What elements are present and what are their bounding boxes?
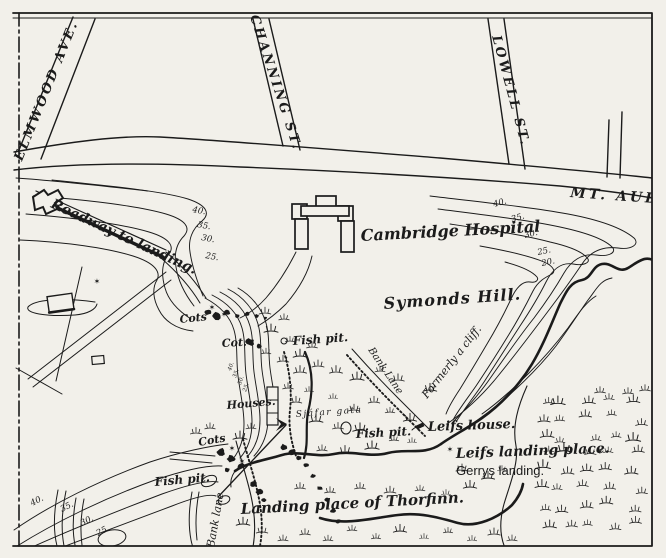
tree-blob xyxy=(225,468,230,473)
star-icon: ✶ xyxy=(239,457,246,466)
label-bank-lane-upper: Bank Lane xyxy=(365,345,405,397)
tree-blob xyxy=(212,312,221,320)
contour-value: 40. xyxy=(28,494,45,510)
marsh-tuft-icon xyxy=(626,433,641,442)
tree-blob xyxy=(296,456,301,461)
mt-auburn-street xyxy=(14,137,652,198)
marsh-tuft-icon xyxy=(561,467,574,474)
tree-blob xyxy=(311,474,316,478)
marsh-tuft-icon xyxy=(636,487,647,494)
star-icon: ✶ xyxy=(229,444,236,453)
marsh-tuft-icon xyxy=(294,366,307,374)
marsh-tuft-icon xyxy=(595,387,606,393)
marsh-tuft-icon xyxy=(300,529,311,535)
marsh-tuft-icon xyxy=(233,431,247,439)
marsh-tuft-icon xyxy=(312,360,324,367)
marsh-tuft-icon xyxy=(580,500,593,508)
marsh-tuft-icon xyxy=(443,527,452,533)
marsh-tuft-icon xyxy=(627,395,640,403)
marsh-tuft-icon xyxy=(538,415,550,422)
marsh-tuft-icon xyxy=(611,432,621,438)
label-cots-upper: Cots xyxy=(179,310,208,326)
marsh-tuft-icon xyxy=(583,520,593,526)
contour-value: 25. xyxy=(94,524,111,540)
contour-value: 30. xyxy=(200,233,215,245)
contour-value: 20. xyxy=(540,256,556,269)
marsh-tuft-icon xyxy=(246,423,256,429)
small-building xyxy=(92,355,105,364)
contour-value: 40. xyxy=(190,205,206,217)
marsh-tuft-icon xyxy=(371,533,380,539)
marsh-tuft-icon xyxy=(604,482,616,489)
field-building xyxy=(47,293,74,312)
marsh-tuft-icon xyxy=(467,535,476,540)
marsh-tuft-icon xyxy=(507,535,517,541)
marsh-tuft-icon xyxy=(552,484,562,490)
unnamed-street xyxy=(607,112,622,178)
marsh-tuft-icon xyxy=(323,535,333,541)
marsh-tuft-icon xyxy=(600,496,613,504)
marsh-tuft-icon xyxy=(205,423,215,429)
marsh-tuft-icon xyxy=(236,517,250,525)
contour-labels-bank: 40. 35. 30. 25. xyxy=(227,361,251,393)
star-icon: ✶ xyxy=(209,303,216,312)
marsh-tuft-icon xyxy=(393,524,406,532)
marsh-tuft-icon xyxy=(347,525,357,531)
marsh-tuft-icon xyxy=(604,394,615,400)
tree-blob xyxy=(227,455,236,463)
cambridge-hospital-building xyxy=(292,196,354,252)
marsh-tuft-icon xyxy=(190,427,201,434)
star-icon: ✶ xyxy=(221,310,228,319)
marsh-tuft-icon xyxy=(632,445,644,452)
marsh-tuft-icon xyxy=(408,438,417,443)
tree-blob xyxy=(263,317,267,320)
marsh-tuft-icon xyxy=(328,393,337,398)
marsh-tuft-icon xyxy=(629,505,641,512)
tree-blob xyxy=(216,448,225,456)
marsh-tuft-icon xyxy=(543,520,557,528)
contour-labels-left: 40. 35. 30. 25. xyxy=(190,205,219,263)
marsh-tuft-icon xyxy=(488,528,500,535)
marsh-tuft-icon xyxy=(540,504,550,510)
star-icon: ✶ xyxy=(447,445,454,454)
label-gata: Sjáfar gata xyxy=(295,404,362,420)
label-symonds-hill: Symonds Hill. xyxy=(383,284,522,313)
marsh-tuft-icon xyxy=(330,366,343,373)
map-border xyxy=(13,13,652,546)
tree-blob xyxy=(244,312,249,316)
marsh-tuft-icon xyxy=(625,466,638,474)
contour-value: 40. xyxy=(491,197,508,211)
marsh-tuft-icon xyxy=(256,526,268,533)
label-bank-lane-lower: Bank lane xyxy=(204,491,227,549)
label-roadway-to-landing: Roadway to landing. xyxy=(47,196,199,278)
label-landing-place-of-thorfinn: Landing place of Thorfinn. xyxy=(239,488,464,518)
historic-map: ✶✶✶✶✶✶✶ ELMWOOD AVE. CHANNING ST. LOWELL… xyxy=(0,0,666,558)
label-gerrys-landing: Gerrys landing. xyxy=(456,463,544,478)
label-fish-pit-mid: Fish pit. xyxy=(354,424,411,441)
marsh-tuft-icon xyxy=(623,388,634,394)
label-leifs-landing-place: Leifs landing place. xyxy=(455,441,610,462)
marsh-tuft-icon xyxy=(591,434,601,440)
bank-lane-upper-path xyxy=(347,349,430,436)
marsh-tuft-icon xyxy=(555,505,567,512)
marsh-tuft-icon xyxy=(610,523,621,530)
marsh-tuft-icon xyxy=(368,396,380,403)
marsh-tuft-icon xyxy=(636,419,648,426)
marsh-tuft-icon xyxy=(463,480,476,488)
marsh-tuft-icon xyxy=(325,487,336,493)
marsh-tuft-icon xyxy=(580,464,593,471)
marsh-tuft-icon xyxy=(385,407,395,413)
label-cot-mid: Cot. xyxy=(221,336,247,350)
marsh-tuft-icon xyxy=(535,479,549,487)
contour-value: 25. xyxy=(536,245,552,258)
marsh-tuft-icon xyxy=(577,480,588,487)
marsh-tuft-icon xyxy=(582,396,595,404)
label-formerly-a-cliff: Formerly a cliff. xyxy=(419,323,485,402)
marsh-tuft-icon xyxy=(543,397,554,403)
contour-value: 25. xyxy=(203,251,219,263)
label-lowell-st: LOWELL ST. xyxy=(488,33,532,149)
marsh-tuft-icon xyxy=(419,533,428,538)
map-canvas: ✶✶✶✶✶✶✶ ELMWOOD AVE. CHANNING ST. LOWELL… xyxy=(0,0,666,558)
star-icon: ✶ xyxy=(94,277,101,286)
marsh-tuft-icon xyxy=(607,410,617,416)
marsh-tuft-icon xyxy=(599,462,612,469)
label-channing-st: CHANNING ST. xyxy=(246,13,304,153)
marsh-tuft-icon xyxy=(350,372,364,380)
label-elmwood-ave: ELMWOOD AVE. xyxy=(11,18,82,164)
marsh-tuft-icon xyxy=(317,445,327,451)
gata-lane-path xyxy=(284,352,312,458)
tree-blob xyxy=(303,463,309,467)
marsh-tuft-icon xyxy=(354,482,365,488)
tree-blob xyxy=(235,314,239,318)
marsh-tuft-icon xyxy=(278,535,288,541)
label-fish-pit-lower: Fish pit. xyxy=(153,470,210,489)
marsh-tuft-icon xyxy=(294,482,305,488)
marsh-tuft-icon xyxy=(566,520,578,527)
marsh-tuft-icon xyxy=(640,385,651,391)
contour-value: 35. xyxy=(196,220,211,232)
tree-blob xyxy=(281,444,288,451)
label-fish-pit-upper: Fish pit. xyxy=(291,330,348,348)
marsh-tuft-icon xyxy=(279,314,289,320)
marsh-tuft-icon xyxy=(365,441,379,449)
marsh-tuft-icon xyxy=(283,383,294,389)
marsh-tuft-icon xyxy=(554,415,564,421)
marsh-tuft-icon xyxy=(630,516,642,523)
tree-blob xyxy=(317,487,322,490)
marsh-tuft-icon xyxy=(579,410,591,417)
label-leifs-house: Leifs house. xyxy=(427,417,516,435)
marsh-tuft-icon xyxy=(290,396,302,403)
marsh-tuft-icon xyxy=(540,429,554,437)
